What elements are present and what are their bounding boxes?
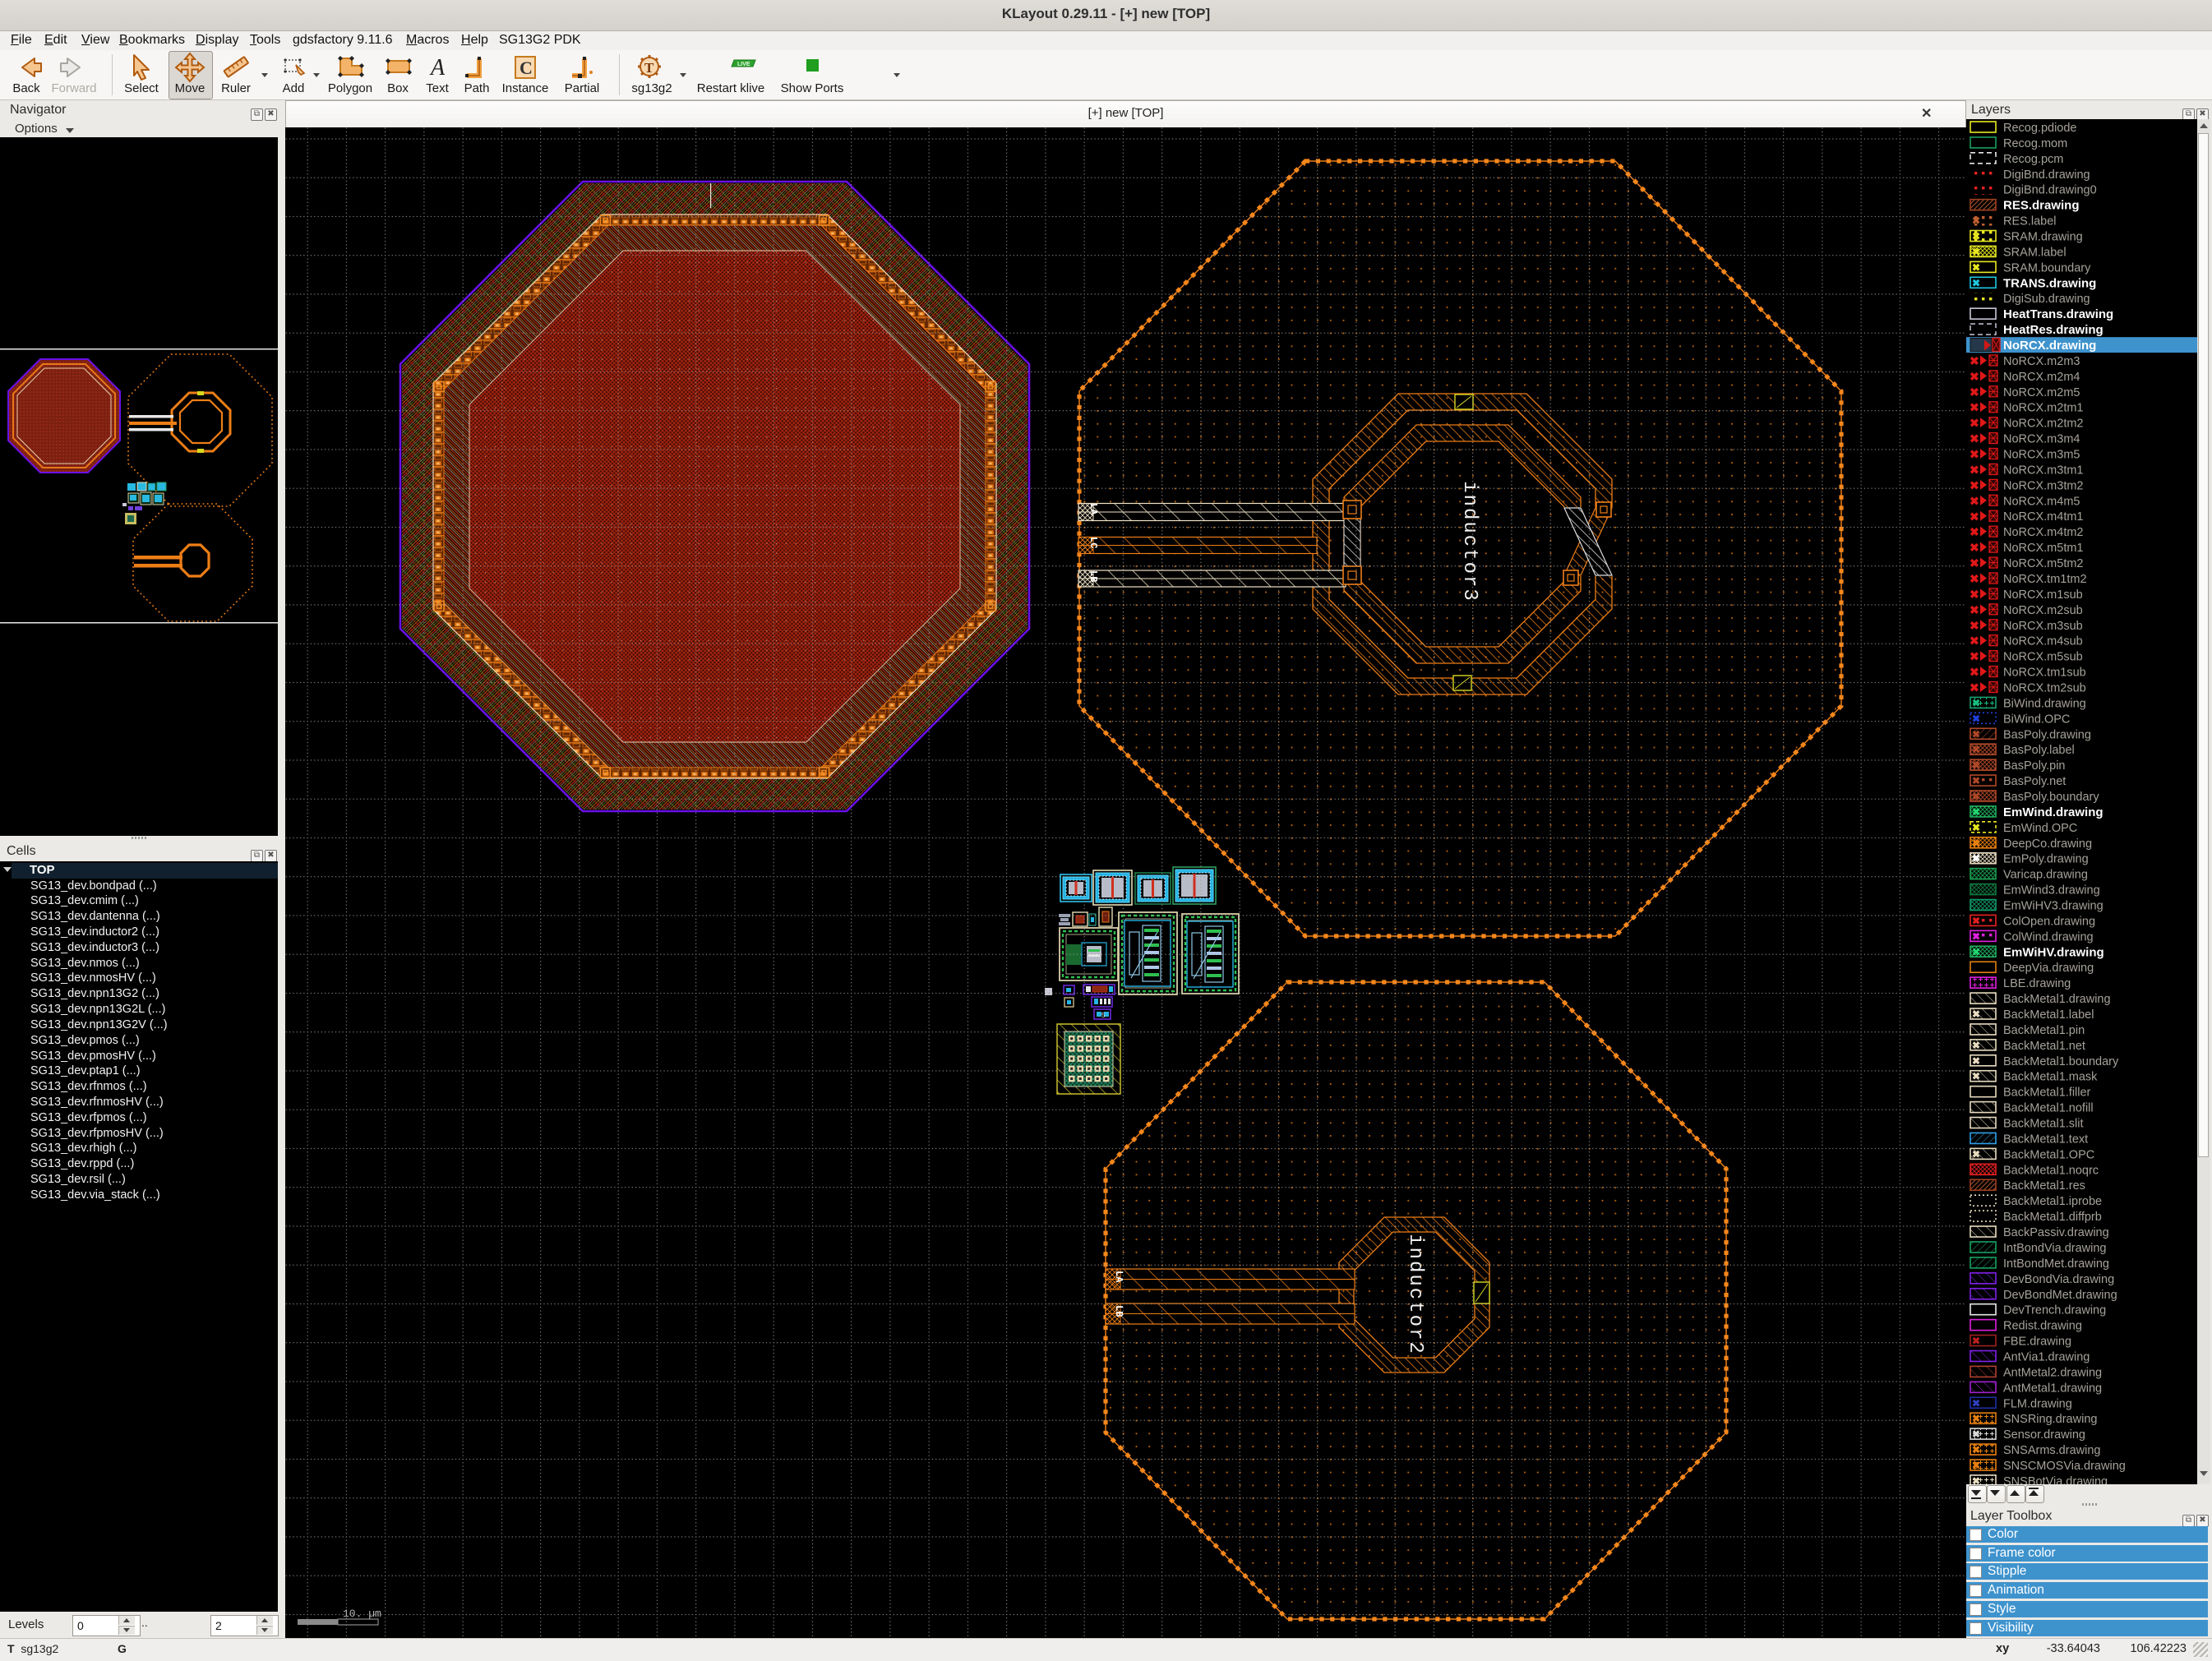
svg-text:BasPoly.net: BasPoly.net [2003,775,2066,788]
svg-text:NoRCX.m2m4: NoRCX.m2m4 [2003,371,2080,384]
svg-text:✖: ✖ [1970,401,1979,414]
svg-text:✖: ✖ [1970,448,1979,461]
svg-text:NoRCX.m3sub: NoRCX.m3sub [2003,620,2083,633]
svg-text:✖: ✖ [1970,385,1979,399]
svg-text:EmWiHV.drawing: EmWiHV.drawing [2003,945,2104,959]
svg-text:ColWind.drawing: ColWind.drawing [2003,930,2094,944]
svg-text:✖: ✖ [1972,728,1980,740]
svg-text:NoRCX.m3tm1: NoRCX.m3tm1 [2003,464,2084,478]
svg-text:✖: ✖ [1970,650,1979,663]
svg-text:SRAM.label: SRAM.label [2003,246,2067,259]
svg-text:BackPassiv.drawing: BackPassiv.drawing [2003,1226,2109,1239]
svg-text:BackMetal1.net: BackMetal1.net [2003,1040,2085,1053]
svg-text:BackMetal1.boundary: BackMetal1.boundary [2003,1055,2119,1068]
svg-text:IntBondMet.drawing: IntBondMet.drawing [2003,1257,2109,1271]
svg-text:BackMetal1.drawing: BackMetal1.drawing [2003,993,2111,1006]
svg-text:LIVE: LIVE [737,62,750,67]
svg-text:NoRCX.m3tm2: NoRCX.m3tm2 [2003,479,2084,492]
svg-text:✖: ✖ [1970,370,1979,383]
svg-text:SNSArms.drawing: SNSArms.drawing [2003,1444,2100,1457]
svg-text:Sensor.drawing: Sensor.drawing [2003,1428,2085,1442]
svg-text:SRAM.drawing: SRAM.drawing [2003,231,2083,244]
svg-text:EmWiHV3.drawing: EmWiHV3.drawing [2003,900,2103,913]
svg-text:EmPoly.drawing: EmPoly.drawing [2003,853,2089,866]
svg-text:SNSCMOSVia.drawing: SNSCMOSVia.drawing [2003,1460,2126,1473]
svg-text:✖: ✖ [1972,1444,1980,1456]
svg-text:T: T [644,60,654,76]
svg-text:✖: ✖ [1972,1397,1980,1409]
svg-text:SNSBotVia.drawing: SNSBotVia.drawing [2003,1475,2108,1484]
svg-text:SRAM.boundary: SRAM.boundary [2003,261,2091,275]
svg-text:EmWind.drawing: EmWind.drawing [2003,805,2103,819]
svg-text:NoRCX.m4m5: NoRCX.m4m5 [2003,495,2080,508]
svg-text:DigiBnd.drawing: DigiBnd.drawing [2003,168,2090,182]
svg-text:FBE.drawing: FBE.drawing [2003,1336,2071,1349]
svg-text:✖: ✖ [1972,1460,1980,1471]
svg-text:✖: ✖ [1972,697,1980,708]
svg-text:BackMetal1.noqrc: BackMetal1.noqrc [2003,1164,2099,1177]
svg-text:✖: ✖ [1972,806,1980,818]
svg-text:✖: ✖ [1972,1071,1980,1082]
svg-text:IntBondVia.drawing: IntBondVia.drawing [2003,1242,2107,1255]
svg-text:Recog.mom: Recog.mom [2003,137,2067,150]
svg-text:NoRCX.m5tm1: NoRCX.m5tm1 [2003,542,2084,555]
svg-text:✖: ✖ [1972,853,1980,865]
svg-text:TRANS.drawing: TRANS.drawing [2003,276,2096,290]
svg-text:BackMetal1.nofill: BackMetal1.nofill [2003,1102,2094,1115]
svg-text:✖: ✖ [1970,478,1979,491]
svg-text:✖: ✖ [1972,930,1980,942]
svg-text:✖: ✖ [1972,1055,1980,1067]
svg-text:✖: ✖ [1970,432,1979,445]
svg-text:BasPoly.drawing: BasPoly.drawing [2003,728,2091,741]
svg-text:BackMetal1.mask: BackMetal1.mask [2003,1071,2098,1084]
svg-text:✖: ✖ [1970,619,1979,632]
svg-text:BackMetal1.pin: BackMetal1.pin [2003,1024,2085,1037]
svg-text:BasPoly.label: BasPoly.label [2003,744,2075,757]
svg-text:DigiBnd.drawing0: DigiBnd.drawing0 [2003,184,2097,197]
svg-text:✖: ✖ [1970,666,1979,679]
svg-text:✖: ✖ [1972,744,1980,755]
svg-text:✖: ✖ [1970,354,1979,367]
svg-text:NoRCX.tm2sub: NoRCX.tm2sub [2003,682,2086,695]
svg-text:BackMetal1.filler: BackMetal1.filler [2003,1087,2091,1100]
svg-text:C: C [520,58,533,78]
svg-text:BasPoly.boundary: BasPoly.boundary [2003,791,2099,804]
svg-text:✖: ✖ [1970,494,1979,507]
svg-text:✖: ✖ [1972,1413,1980,1424]
svg-text:✖: ✖ [1972,837,1980,849]
svg-text:✖: ✖ [1972,215,1980,227]
svg-text:HeatTrans.drawing: HeatTrans.drawing [2003,307,2113,321]
svg-text:BackMetal1.diffprb: BackMetal1.diffprb [2003,1211,2102,1224]
svg-text:AntVia1.drawing: AntVia1.drawing [2003,1351,2090,1364]
svg-text:ColOpen.drawing: ColOpen.drawing [2003,915,2095,928]
svg-text:✖: ✖ [1970,572,1979,585]
svg-text:10. µm: 10. µm [343,1608,381,1620]
svg-text:NoRCX.drawing: NoRCX.drawing [2003,339,2096,353]
svg-text:✖: ✖ [1972,1428,1980,1440]
svg-text:NoRCX.tm1sub: NoRCX.tm1sub [2003,667,2086,680]
svg-text:✖: ✖ [1972,231,1980,242]
svg-text:BasPoly.pin: BasPoly.pin [2003,759,2066,773]
svg-text:Varicap.drawing: Varicap.drawing [2003,869,2088,882]
svg-text:✖: ✖ [1972,791,1980,802]
svg-text:✖: ✖ [1970,417,1979,430]
svg-text:NoRCX.m5tm2: NoRCX.m5tm2 [2003,557,2084,570]
svg-text:RES.label: RES.label [2003,215,2056,228]
svg-text:DigiSub.drawing: DigiSub.drawing [2003,293,2090,306]
svg-text:DevBondMet.drawing: DevBondMet.drawing [2003,1289,2117,1302]
svg-text:BiWind.OPC: BiWind.OPC [2003,713,2070,726]
svg-text:DeepVia.drawing: DeepVia.drawing [2003,962,2094,975]
svg-text:✖: ✖ [1970,525,1979,538]
svg-text:NoRCX.m2sub: NoRCX.m2sub [2003,604,2083,617]
svg-text:NoRCX.m2tm2: NoRCX.m2tm2 [2003,418,2084,431]
svg-text:NoRCX.m1sub: NoRCX.m1sub [2003,588,2083,602]
svg-text:Recog.pdiode: Recog.pdiode [2003,122,2077,135]
svg-text:BiWind.drawing: BiWind.drawing [2003,697,2086,710]
svg-text:DevBondVia.drawing: DevBondVia.drawing [2003,1273,2114,1286]
svg-text:NoRCX.m2m5: NoRCX.m2m5 [2003,386,2080,399]
svg-text:✖: ✖ [1970,463,1979,476]
svg-text:EmWind3.drawing: EmWind3.drawing [2003,884,2100,897]
svg-text:DeepCo.drawing: DeepCo.drawing [2003,837,2092,851]
svg-text:✖: ✖ [1972,1148,1980,1160]
svg-text:✖: ✖ [1970,588,1979,601]
svg-text:✖: ✖ [1970,603,1979,616]
svg-text:NoRCX.m4tm1: NoRCX.m4tm1 [2003,510,2084,524]
svg-text:✖: ✖ [1972,822,1980,833]
svg-text:✖: ✖ [1970,556,1979,570]
svg-text:✖: ✖ [1970,681,1979,694]
svg-text:BackMetal1.OPC: BackMetal1.OPC [2003,1148,2094,1161]
svg-text:NoRCX.m4tm2: NoRCX.m4tm2 [2003,526,2084,539]
svg-text:NoRCX.m3m5: NoRCX.m3m5 [2003,449,2080,462]
svg-text:✖: ✖ [1972,246,1980,257]
svg-text:✖: ✖ [1972,1336,1980,1347]
svg-text:BackMetal1.text: BackMetal1.text [2003,1133,2088,1147]
svg-text:BackMetal1.slit: BackMetal1.slit [2003,1118,2084,1131]
svg-text:FLM.drawing: FLM.drawing [2003,1397,2072,1410]
svg-text:Recog.pcm: Recog.pcm [2003,153,2063,166]
svg-text:BackMetal1.iprobe: BackMetal1.iprobe [2003,1195,2102,1208]
svg-text:NoRCX.tm1tm2: NoRCX.tm1tm2 [2003,573,2087,586]
svg-text:✖: ✖ [1972,1040,1980,1051]
svg-text:NoRCX.m5sub: NoRCX.m5sub [2003,651,2083,664]
svg-text:AntMetal2.drawing: AntMetal2.drawing [2003,1366,2102,1379]
svg-text:SNSRing.drawing: SNSRing.drawing [2003,1413,2097,1426]
svg-text:NoRCX.m3m4: NoRCX.m3m4 [2003,433,2080,446]
svg-text:✖: ✖ [1970,541,1979,554]
svg-text:✖: ✖ [1972,1475,1980,1484]
svg-text:A: A [429,55,446,81]
svg-text:✖: ✖ [1972,713,1980,724]
svg-text:✖: ✖ [1970,634,1979,648]
svg-text:AntMetal1.drawing: AntMetal1.drawing [2003,1382,2102,1395]
svg-text:DevTrench.drawing: DevTrench.drawing [2003,1304,2106,1317]
svg-text:NoRCX.m2tm1: NoRCX.m2tm1 [2003,402,2084,415]
svg-text:NoRCX.m2m3: NoRCX.m2m3 [2003,355,2080,368]
svg-text:✖: ✖ [1972,1008,1980,1020]
svg-text:✖: ✖ [1972,915,1980,926]
svg-text:NoRCX.m4sub: NoRCX.m4sub [2003,635,2083,648]
svg-text:LBE.drawing: LBE.drawing [2003,977,2071,990]
svg-text:HeatRes.drawing: HeatRes.drawing [2003,323,2103,337]
svg-text:BackMetal1.res: BackMetal1.res [2003,1179,2085,1193]
svg-text:✖: ✖ [1972,759,1980,771]
svg-text:✖: ✖ [1972,775,1980,787]
svg-text:Redist.drawing: Redist.drawing [2003,1320,2082,1333]
svg-text:EmWind.OPC: EmWind.OPC [2003,822,2077,835]
svg-text:✖: ✖ [1972,946,1980,957]
svg-text:✖: ✖ [1972,277,1980,288]
svg-text:BackMetal1.label: BackMetal1.label [2003,1008,2094,1022]
svg-text:✖: ✖ [1970,510,1979,523]
svg-text:✖: ✖ [1972,261,1980,273]
svg-text:RES.drawing: RES.drawing [2003,199,2080,213]
